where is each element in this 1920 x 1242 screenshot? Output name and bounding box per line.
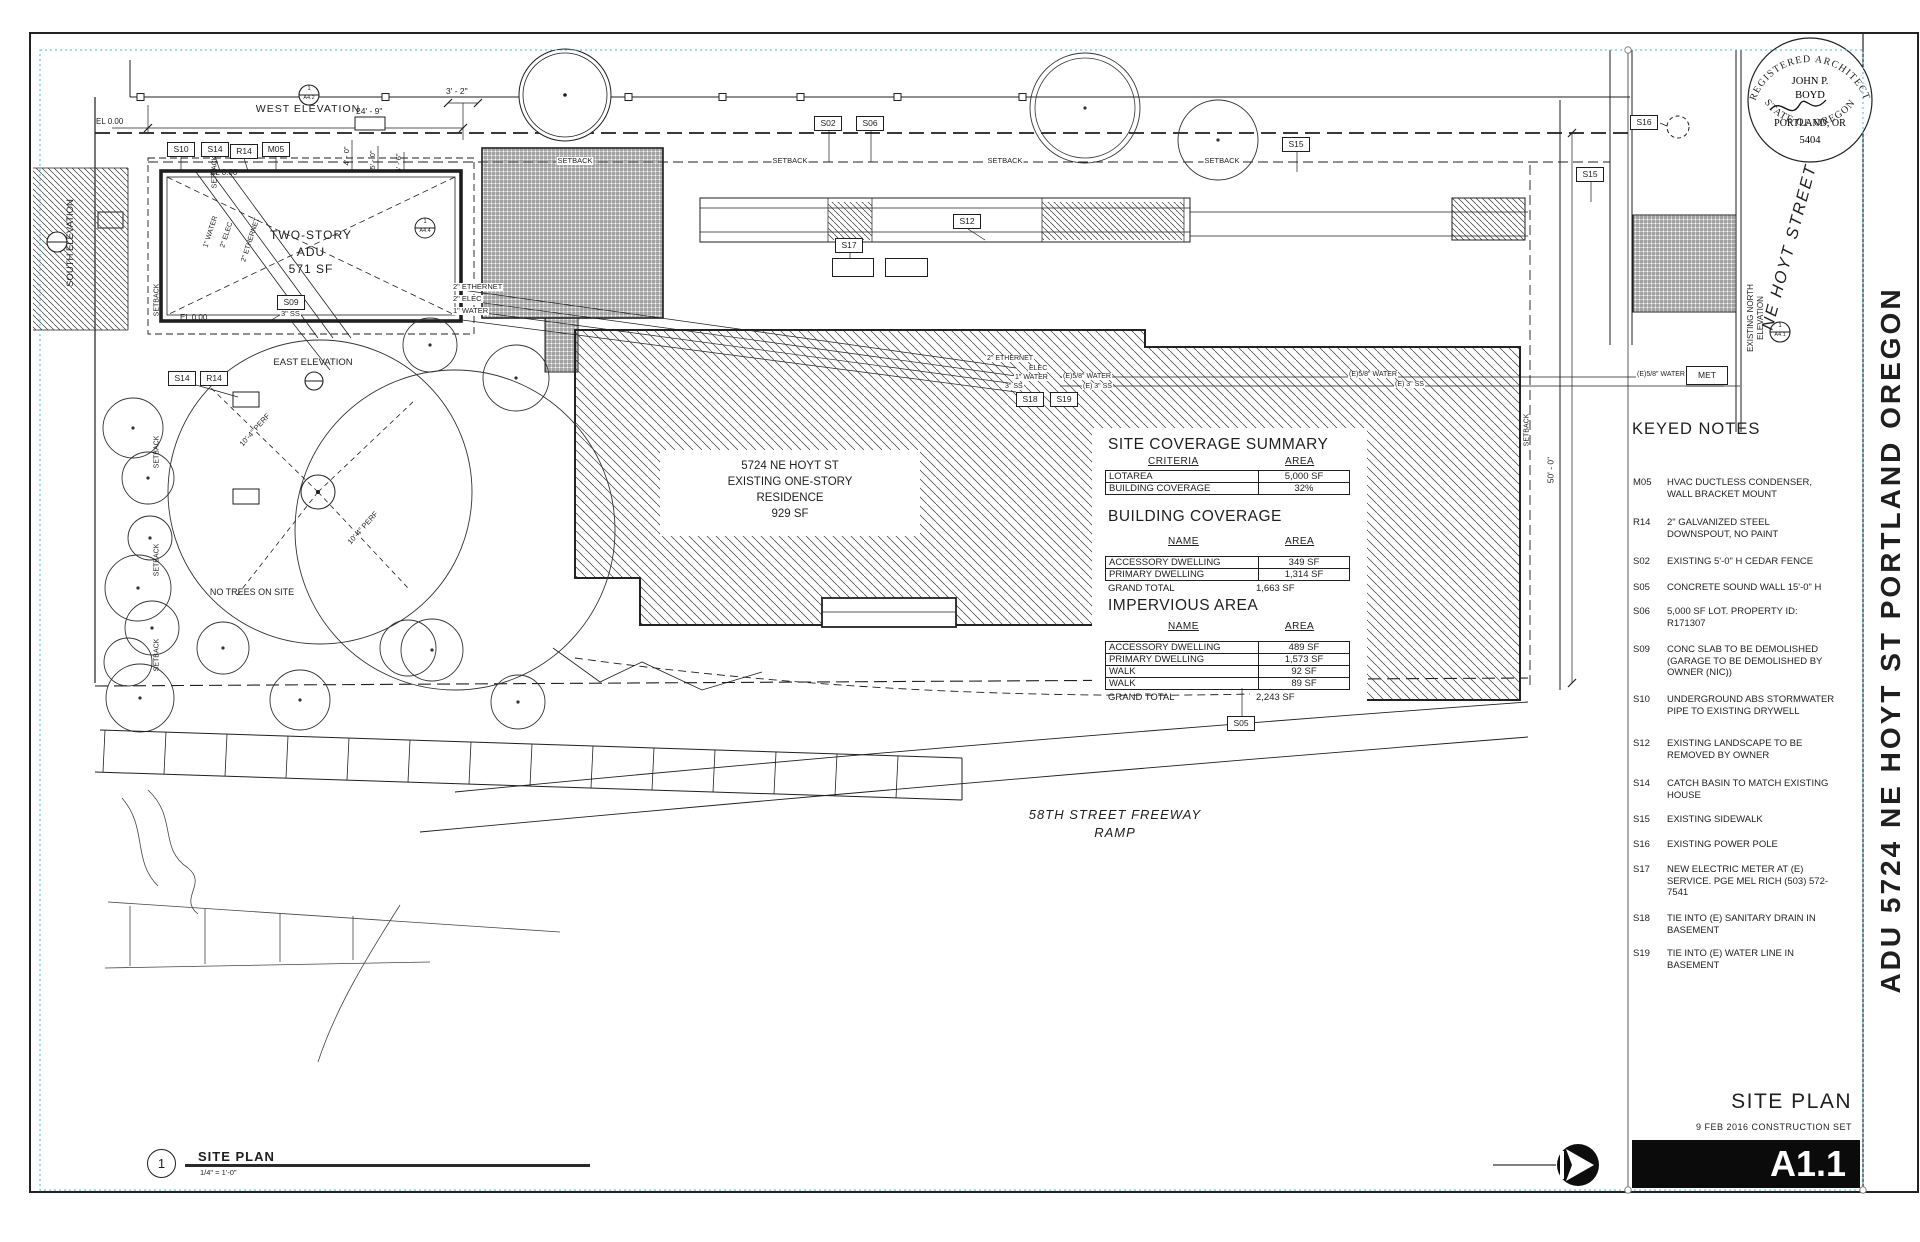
dim-50-0: 50' - 0" — [1547, 457, 1556, 483]
adu-label-3: 571 SF — [289, 263, 334, 276]
marker-west-number: 1 — [307, 86, 310, 92]
keyed-note: S19 TIE INTO (E) WATER LINE IN BASEMENT — [1633, 948, 1835, 971]
impervious-heading: IMPERVIOUS AREA — [1108, 597, 1258, 615]
tag-s12: S12 — [953, 214, 981, 229]
note-code: M05 — [1633, 477, 1667, 500]
note-code: R14 — [1633, 517, 1667, 540]
marker-adu-number: 1 — [423, 219, 426, 225]
residence-label-3: RESIDENCE — [756, 492, 823, 504]
marker-adu-sheet: A4.4 — [419, 229, 430, 235]
residence-label-1: 5724 NE HOYT ST — [741, 460, 839, 472]
building-coverage-table: ACCESSORY DWELLING 349 SF PRIMARY DWELLI… — [1105, 556, 1350, 581]
drawing-number-bubble: 1 — [147, 1149, 176, 1178]
util-water-house: 1" WATER — [1014, 374, 1049, 381]
table-row: BUILDING COVERAGE 32% — [1106, 483, 1349, 494]
drawing-scale: 1/4" = 1'-0" — [200, 1169, 237, 1177]
util-elec-house: ELEC — [1028, 365, 1048, 372]
dim-3-2: 3' - 2" — [446, 87, 468, 96]
keyed-note: S02 EXISTING 5'-0" H CEDAR FENCE — [1633, 556, 1835, 568]
cell: ACCESSORY DWELLING — [1106, 557, 1259, 568]
note-text: EXISTING 5'-0" H CEDAR FENCE — [1667, 556, 1835, 568]
marker-north-number: 1 — [1778, 323, 1781, 329]
util-e-ss-2: (E) 3" SS — [1394, 381, 1425, 388]
west-elevation-label: WEST ELEVATION — [256, 104, 360, 115]
note-text: CONC SLAB TO BE DEMOLISHED (GARAGE TO BE… — [1667, 644, 1835, 679]
table-row: PRIMARY DWELLING 1,573 SF — [1106, 654, 1349, 666]
tag-s16: S16 — [1630, 115, 1658, 130]
keyed-note: S17 NEW ELECTRIC METER AT (E) SERVICE. P… — [1633, 864, 1835, 899]
table-row: LOTAREA 5,000 SF — [1106, 471, 1349, 483]
cell: WALK — [1106, 678, 1259, 689]
building-coverage-total-value: 1,663 SF — [1256, 583, 1295, 594]
setback-left-4: SETBACK — [153, 639, 160, 672]
note-code: S18 — [1633, 913, 1667, 936]
cell: 32% — [1259, 483, 1349, 494]
cell: 349 SF — [1259, 557, 1349, 568]
cell: PRIMARY DWELLING — [1106, 654, 1259, 665]
note-text: HVAC DUCTLESS CONDENSER, WALL BRACKET MO… — [1667, 477, 1835, 500]
site-coverage-table: LOTAREA 5,000 SF BUILDING COVERAGE 32% — [1105, 470, 1350, 495]
cell: 489 SF — [1259, 642, 1349, 653]
setback-left-3: SETBACK — [153, 544, 160, 577]
residence-label-2: EXISTING ONE-STORY — [728, 476, 853, 488]
setback-top-2: SETBACK — [771, 157, 808, 165]
tag-s14: S14 — [201, 142, 229, 157]
impervious-table: ACCESSORY DWELLING 489 SF PRIMARY DWELLI… — [1105, 641, 1350, 690]
note-text: 2" GALVANIZED STEEL DOWNSPOUT, NO PAINT — [1667, 517, 1835, 540]
keyed-note: S16 EXISTING POWER POLE — [1633, 839, 1835, 851]
tag-r14-basin: R14 — [200, 371, 228, 386]
adu-label-2: ADU — [297, 246, 325, 259]
keyed-note: R14 2" GALVANIZED STEEL DOWNSPOUT, NO PA… — [1633, 517, 1835, 540]
keyed-note: S14 CATCH BASIN TO MATCH EXISTING HOUSE — [1633, 778, 1835, 801]
cell: BUILDING COVERAGE — [1106, 483, 1259, 494]
keyed-note: S06 5,000 SF LOT. PROPERTY ID: R171307 — [1633, 606, 1835, 629]
adu-label-1: TWO-STORY — [270, 229, 352, 242]
table-row: WALK 92 SF — [1106, 666, 1349, 678]
note-text: CATCH BASIN TO MATCH EXISTING HOUSE — [1667, 778, 1835, 801]
note-code: S06 — [1633, 606, 1667, 629]
note-code: S02 — [1633, 556, 1667, 568]
util-ss-adu: 3" SS — [280, 310, 301, 318]
setback-top-3: SETBACK — [986, 157, 1023, 165]
util-ethernet-house: 2" ETHERNET — [986, 355, 1034, 362]
setback-top-1: SETBACK — [556, 157, 593, 165]
dim-5-6: 5' - 6" — [395, 153, 403, 172]
note-text: 5,000 SF LOT. PROPERTY ID: R171307 — [1667, 606, 1835, 629]
util-ethernet-mid: 2" ETHERNET — [452, 283, 503, 291]
keyed-note: S10 UNDERGROUND ABS STORMWATER PIPE TO E… — [1633, 694, 1835, 717]
drawing-title: SITE PLAN — [198, 1150, 275, 1164]
note-text: EXISTING POWER POLE — [1667, 839, 1835, 851]
south-elevation-label: SOUTH ELEVATION — [66, 199, 76, 287]
tag-s14-basin: S14 — [168, 371, 196, 386]
cell: WALK — [1106, 666, 1259, 677]
util-elec-mid: 2" ELEC — [452, 295, 483, 303]
tag-s06: S06 — [856, 116, 884, 131]
building-coverage-heading: BUILDING COVERAGE — [1108, 508, 1282, 526]
setback-left-1: SETBACK — [153, 284, 160, 317]
util-e-water-3: (E)5/8" WATER — [1636, 371, 1686, 378]
water-meter-tag: MET — [1686, 366, 1728, 385]
note-text: EXISTING LANDSCAPE TO BE REMOVED BY OWNE… — [1667, 738, 1835, 761]
keyed-note: S12 EXISTING LANDSCAPE TO BE REMOVED BY … — [1633, 738, 1835, 761]
cell: 5,000 SF — [1259, 471, 1349, 482]
dim-5-0: 5' - 0" — [369, 150, 377, 169]
note-text: TIE INTO (E) SANITARY DRAIN IN BASEMENT — [1667, 913, 1835, 936]
impervious-col1: NAME — [1168, 621, 1199, 632]
cell: PRIMARY DWELLING — [1106, 569, 1259, 580]
keyed-note: M05 HVAC DUCTLESS CONDENSER, WALL BRACKE… — [1633, 477, 1835, 500]
dim-24-9: 24' - 9" — [356, 107, 382, 116]
note-code: S19 — [1633, 948, 1667, 971]
site-plan-linework: REGISTERED ARCHITECT JOHN P. BOYD PORTLA… — [0, 0, 1920, 1242]
cell: 89 SF — [1259, 678, 1349, 689]
north-elevation-label-2: ELEVATION — [1757, 296, 1765, 340]
title-block-date: 9 FEB 2016 CONSTRUCTION SET — [1640, 1122, 1852, 1132]
tag-s05: S05 — [1227, 716, 1255, 731]
cell: 1,573 SF — [1259, 654, 1349, 665]
residence-label-4: 929 SF — [771, 508, 808, 520]
tag-s15-a: S15 — [1282, 137, 1310, 152]
meter-box-1 — [832, 258, 874, 277]
util-e-ss-1: (E) 3" SS — [1082, 383, 1113, 390]
table-row: WALK 89 SF — [1106, 678, 1349, 689]
el-000-a: EL 0.00 — [96, 118, 123, 126]
building-coverage-col2: AREA — [1285, 536, 1314, 547]
stamp-name-1: JOHN P. — [1792, 76, 1829, 87]
site-coverage-col2: AREA — [1285, 456, 1314, 467]
site-coverage-col1: CRITERIA — [1148, 456, 1199, 467]
keyed-note: S18 TIE INTO (E) SANITARY DRAIN IN BASEM… — [1633, 913, 1835, 936]
tag-s09: S09 — [277, 295, 305, 310]
keyed-note: S05 CONCRETE SOUND WALL 15'-0" H — [1633, 582, 1835, 594]
note-code: S16 — [1633, 839, 1667, 851]
impervious-col2: AREA — [1285, 621, 1314, 632]
cell: 92 SF — [1259, 666, 1349, 677]
tag-s02: S02 — [814, 116, 842, 131]
setback-right-1: SETBACK — [1523, 414, 1530, 447]
note-code: S15 — [1633, 814, 1667, 826]
cell: ACCESSORY DWELLING — [1106, 642, 1259, 653]
freeway-label-1: 58TH STREET FREEWAY — [1029, 808, 1201, 822]
tag-s18: S18 — [1016, 392, 1044, 407]
note-code: S12 — [1633, 738, 1667, 761]
marker-north-sheet: A4.1 — [1774, 333, 1785, 339]
site-coverage-heading: SITE COVERAGE SUMMARY — [1108, 436, 1328, 454]
note-text: CONCRETE SOUND WALL 15'-0" H — [1667, 582, 1835, 594]
architect-stamp: REGISTERED ARCHITECT JOHN P. BOYD PORTLA… — [1748, 38, 1873, 162]
architectural-sheet: REGISTERED ARCHITECT JOHN P. BOYD PORTLA… — [0, 0, 1920, 1242]
table-row: ACCESSORY DWELLING 349 SF — [1106, 557, 1349, 569]
marker-west-sheet: A4.2 — [303, 96, 314, 102]
note-text: NEW ELECTRIC METER AT (E) SERVICE. PGE M… — [1667, 864, 1835, 899]
note-code: S14 — [1633, 778, 1667, 801]
tag-s15-b: S15 — [1576, 167, 1604, 182]
note-text: EXISTING SIDEWALK — [1667, 814, 1835, 826]
drawing-title-rule — [185, 1164, 590, 1167]
tag-m05: M05 — [262, 142, 290, 157]
cell: 1,314 SF — [1259, 569, 1349, 580]
title-block-title: SITE PLAN — [1640, 1090, 1852, 1114]
tag-r14: R14 — [230, 144, 258, 159]
el-000-c: EL 0.00 — [180, 314, 207, 322]
tag-s19: S19 — [1050, 392, 1078, 407]
impervious-total-value: 2,243 SF — [1256, 692, 1295, 703]
keyed-note: S09 CONC SLAB TO BE DEMOLISHED (GARAGE T… — [1633, 644, 1835, 679]
stamp-name-2: BOYD — [1795, 90, 1825, 101]
sheet-number: A1.1 — [1632, 1140, 1860, 1188]
impervious-total-label: GRAND TOTAL — [1108, 692, 1175, 703]
building-coverage-col1: NAME — [1168, 536, 1199, 547]
tag-s10: S10 — [167, 142, 195, 157]
table-row: ACCESSORY DWELLING 489 SF — [1106, 642, 1349, 654]
util-water-mid: 1" WATER — [452, 307, 489, 315]
freeway-label-2: RAMP — [1094, 826, 1136, 840]
note-code: S17 — [1633, 864, 1667, 899]
util-e-water-2: (E)5/8" WATER — [1348, 371, 1398, 378]
note-code: S09 — [1633, 644, 1667, 679]
note-code: S10 — [1633, 694, 1667, 717]
util-ss-house: 3" SS — [1004, 383, 1024, 390]
east-elevation-label: EAST ELEVATION — [273, 358, 352, 368]
project-title-vertical: ADU 5724 NE HOYT ST PORTLAND OREGON — [1875, 230, 1907, 1050]
setback-top-4: SETBACK — [1203, 157, 1240, 165]
north-elevation-label-1: EXISTING NORTH — [1747, 284, 1755, 352]
no-trees-note: NO TREES ON SITE — [210, 588, 294, 597]
note-text: UNDERGROUND ABS STORMWATER PIPE TO EXIST… — [1667, 694, 1835, 717]
cell: LOTAREA — [1106, 471, 1259, 482]
setback-left-2: SETBACK — [153, 436, 160, 469]
keyed-note: S15 EXISTING SIDEWALK — [1633, 814, 1835, 826]
setback-left-5: SETBACK — [211, 156, 218, 189]
note-text: TIE INTO (E) WATER LINE IN BASEMENT — [1667, 948, 1835, 971]
note-code: S05 — [1633, 582, 1667, 594]
util-e-water-1: (E)5/8" WATER — [1062, 373, 1112, 380]
meter-box-2 — [885, 258, 928, 277]
dim-4-0: 4' - 0" — [343, 146, 351, 165]
keyed-notes-heading: KEYED NOTES — [1632, 421, 1760, 438]
building-coverage-total-label: GRAND TOTAL — [1108, 583, 1175, 594]
tag-s17: S17 — [835, 238, 863, 253]
table-row: PRIMARY DWELLING 1,314 SF — [1106, 569, 1349, 580]
stamp-license: 5404 — [1800, 135, 1822, 146]
